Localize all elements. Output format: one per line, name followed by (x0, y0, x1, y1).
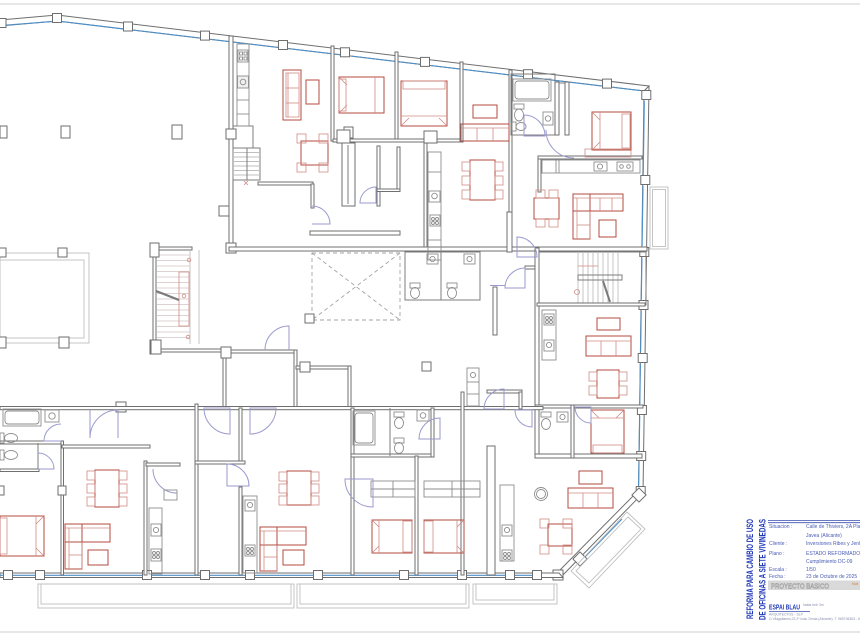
svg-text:Escala :: Escala : (769, 567, 787, 573)
svg-text:hasta tmb 3m: hasta tmb 3m (803, 603, 824, 607)
svg-text:Javea (Alicante): Javea (Alicante) (806, 533, 842, 539)
svg-text:REFORMA PARA CAMBIO DE USO: REFORMA PARA CAMBIO DE USO (745, 519, 755, 619)
svg-text:Cumplimiento DC-09: Cumplimiento DC-09 (806, 559, 853, 565)
svg-text:ARQUITECTOS - SLP: ARQUITECTOS - SLP (769, 613, 804, 617)
svg-text:Cliente :: Cliente : (769, 541, 787, 547)
svg-text:C/ Magallanes,23 2º izda. Deni: C/ Magallanes,23 2º izda. Denia (Alicant… (769, 617, 860, 621)
svg-text:1/50: 1/50 (806, 567, 816, 573)
svg-text:ESPAI BLAU: ESPAI BLAU (769, 605, 800, 612)
svg-text:Not: Not (852, 581, 859, 586)
svg-text:Inversiones Ribes y Jenkins S.: Inversiones Ribes y Jenkins S.L (806, 541, 860, 547)
svg-text:23 de Octubre de 2025: 23 de Octubre de 2025 (806, 574, 857, 580)
svg-text:Fecha :: Fecha : (769, 574, 786, 580)
svg-text:PROYECTO BASICO: PROYECTO BASICO (771, 581, 829, 590)
svg-text:ESTADO REFORMADO:: ESTADO REFORMADO: (806, 551, 860, 557)
svg-text:DE OFICINAS A SIETE VIVINEDAS: DE OFICINAS A SIETE VIVINEDAS (758, 519, 768, 620)
svg-text:Calle de Thiviers, 2A Planta P: Calle de Thiviers, 2A Planta Pri (806, 524, 860, 530)
svg-text:Plano :: Plano : (769, 551, 785, 557)
svg-text:Situacion :: Situacion : (769, 524, 792, 530)
